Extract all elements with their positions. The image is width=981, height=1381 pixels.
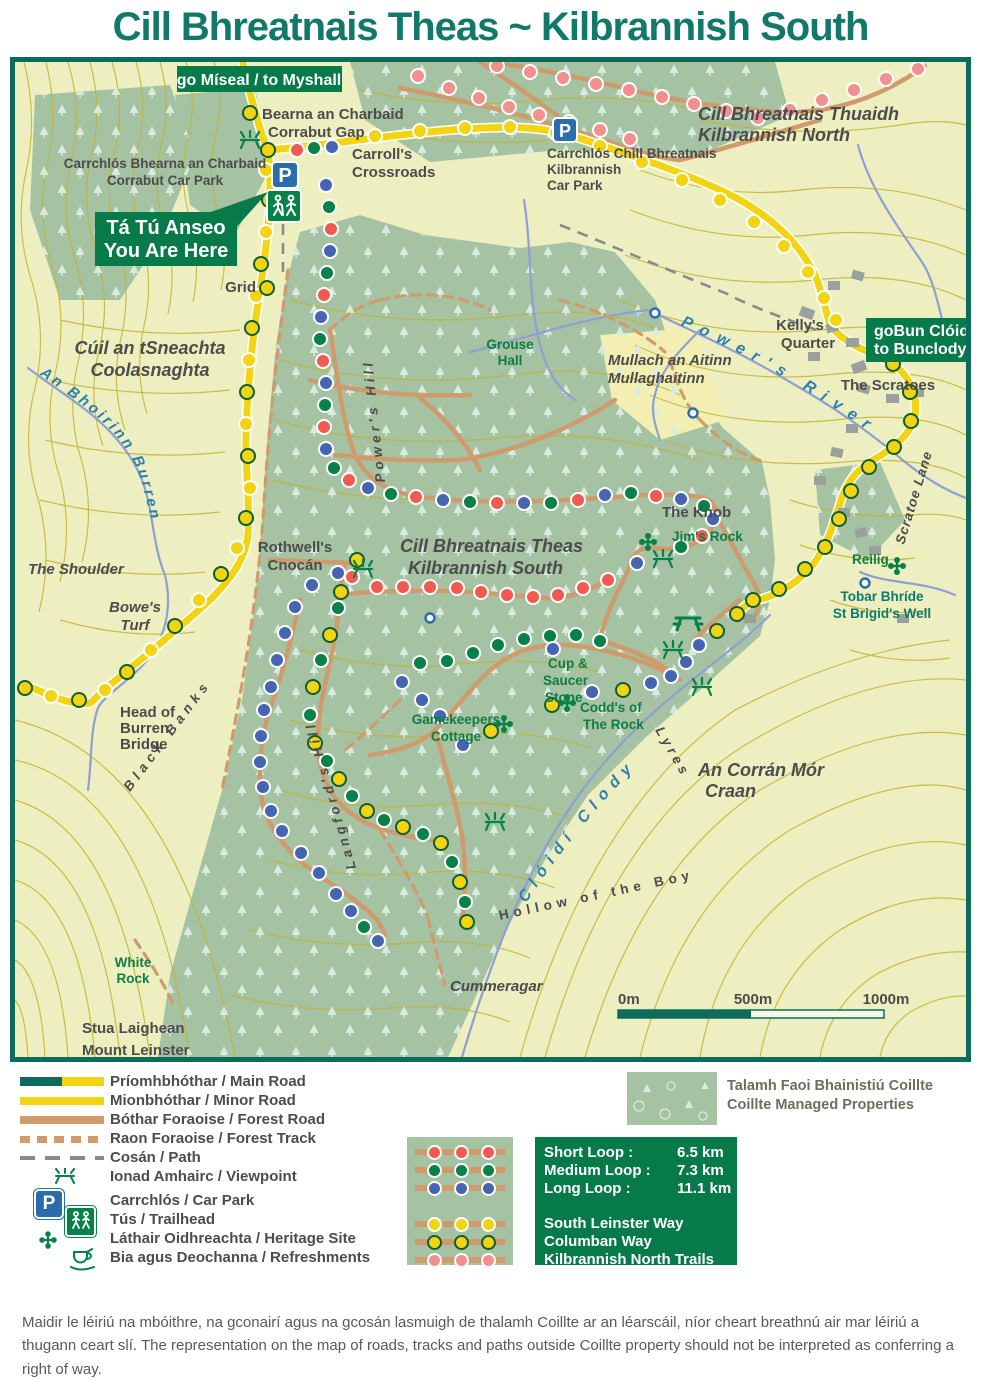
label-white-rock-1: White [115, 955, 152, 970]
south-leinster-way-dots [415, 1217, 505, 1231]
label-corran-mor-2: Craan [705, 781, 756, 801]
label-st-brigids-2: St Brigid's Well [833, 606, 931, 621]
label-kilbrannish-south-1: Cill Bhreatnais Theas [400, 536, 583, 556]
label-kilbrannish-south-2: Kilbrannish South [408, 558, 563, 578]
label-mullaghaitinn-2: Mullaghaitinn [608, 370, 705, 387]
label-codds-1: Codd's of [580, 700, 642, 715]
label-cummeragar: Cummeragar [450, 978, 544, 995]
legend-forest-road-label: Bóthar Foraoise / Forest Road [110, 1111, 325, 1128]
south-leinster-way-label: South Leinster Way [544, 1215, 737, 1233]
heritage-site-icon [36, 1228, 60, 1252]
label-coolasnaghta-2: Coolasnaghta [90, 360, 209, 380]
short-loop-name: Short Loop : [544, 1144, 677, 1162]
legend-heritage-label: Láthair Oidhreachta / Heritage Site [110, 1230, 356, 1247]
label-gamekeepers-1: Gamekeepers [412, 712, 501, 727]
short-loop-row: Short Loop : 6.5 km [544, 1144, 737, 1162]
label-the-knob: The Knob [662, 504, 731, 521]
forest-road-swatch [20, 1116, 104, 1124]
medium-loop-name: Medium Loop : [544, 1162, 677, 1180]
label-mount-leinster-2: Mount Leinster [82, 1042, 190, 1057]
medium-loop-dots [415, 1163, 505, 1177]
main-road-swatch [20, 1077, 104, 1086]
columban-way-label: Columban Way [544, 1233, 737, 1251]
label-grouse-hall-2: Hall [498, 353, 523, 368]
svg-text:go Míseal / to Myshall: go Míseal / to Myshall [177, 72, 341, 89]
label-coolasnaghta-1: Cúil an tSneachta [74, 338, 225, 358]
disclaimer-text: Maidir le léiriú na mbóithre, na gconair… [22, 1311, 959, 1381]
label-codds-2: The Rock [583, 717, 644, 732]
legend-trailhead-label: Tús / Trailhead [110, 1211, 215, 1228]
path-swatch [20, 1156, 104, 1160]
sign-to-bunclody: goBun Clóidí to Bunclody [866, 318, 966, 362]
scale-zero: 0m [618, 991, 640, 1008]
viewpoint-icon [50, 1168, 80, 1186]
short-loop-distance: 6.5 km [677, 1144, 724, 1162]
managed-properties-swatch [627, 1072, 717, 1125]
svg-text:P: P [278, 165, 291, 187]
legend-main-road-label: Príomhbhóthar / Main Road [110, 1073, 306, 1090]
svg-text:Tá Tú Anseo: Tá Tú Anseo [106, 217, 225, 239]
page-title: Cill Bhreatnais Theas ~ Kilbrannish Sout… [0, 0, 981, 55]
label-kilbrannish-carpark-1: Carrchlós Chill Bhreatnais [547, 146, 717, 161]
label-head-burren-1: Head of [120, 704, 176, 721]
label-bowes-turf-1: Bowe's [109, 599, 161, 616]
label-cup-saucer-1: Cup & [548, 656, 588, 671]
label-kilbrannish-carpark-3: Car Park [547, 178, 603, 193]
label-corrabut-carpark-1: Carrchlós Bhearna an Charbaid [64, 156, 267, 171]
long-loop-distance: 11.1 km [677, 1180, 731, 1198]
label-cup-saucer-3: Stone [545, 690, 583, 705]
trailhead-icon [65, 1206, 96, 1237]
scale-end: 1000m [863, 991, 910, 1008]
label-white-rock-2: Rock [116, 971, 150, 986]
long-loop-row: Long Loop : 11.1 km [544, 1180, 737, 1198]
label-kilbrannish-north-2: Kilbrannish North [698, 125, 850, 145]
label-corran-mor-1: An Corrán Mór [697, 760, 825, 780]
label-jims-rock: Jim's Rock [672, 529, 743, 544]
kilbrannish-north-dots [415, 1253, 505, 1267]
long-loop-dots [415, 1181, 505, 1195]
legend-refreshments-label: Bia agus Deochanna / Refreshments [110, 1249, 370, 1266]
managed-properties-label-1: Talamh Faoi Bhainistiú Coillte [727, 1078, 933, 1094]
trail-dot-legend [407, 1137, 513, 1265]
minor-road-swatch [20, 1097, 104, 1105]
kilbrannish-north-trails-label: Kilbrannish North Trails [544, 1251, 737, 1269]
short-loop-dots [415, 1145, 505, 1159]
label-st-brigids-1: Tobar Bhríde [840, 589, 923, 604]
label-bearna-1: Bearna an Charbaid [262, 106, 404, 123]
sign-to-myshall: go Míseal / to Myshall [177, 66, 342, 92]
label-grouse-hall-1: Grouse [486, 337, 534, 352]
label-reilig: Reilig [852, 552, 889, 567]
label-carrolls-1: Carroll's [352, 146, 412, 163]
legend-forest-track-label: Raon Foraoise / Forest Track [110, 1130, 316, 1147]
label-cup-saucer-2: Saucer [543, 673, 589, 688]
loop-distance-panel: Short Loop : 6.5 km Medium Loop : 7.3 km… [535, 1137, 737, 1265]
label-kilbrannish-carpark-2: Kilbrannish [547, 162, 621, 177]
label-gamekeepers-2: Cottage [431, 729, 482, 744]
trail-map: P P Bearna an Charbaid Corrabut Gap Carr… [10, 57, 971, 1062]
label-mount-leinster-1: Stua Laighean [82, 1020, 185, 1037]
legend-viewpoint-label: Ionad Amhairc / Viewpoint [110, 1168, 297, 1185]
refreshments-icon [68, 1247, 98, 1273]
label-corrabut-carpark-2: Corrabut Car Park [107, 173, 224, 188]
label-rothwells-1: Rothwell's [258, 539, 332, 556]
label-mullaghaitinn-1: Mullach an Aitinn [608, 352, 732, 369]
label-carrolls-2: Crossroads [352, 164, 435, 181]
legend-car-park-label: Carrchlós / Car Park [110, 1192, 254, 1209]
label-kellys-2: Quarter [781, 335, 835, 352]
label-kellys-1: Kelly's [776, 317, 824, 334]
label-rothwells-2: Cnocán [267, 557, 322, 574]
svg-text:goBun Clóidí: goBun Clóidí [874, 323, 966, 340]
svg-text:P: P [559, 121, 571, 141]
legend-minor-road-label: Mionbhóthar / Minor Road [110, 1092, 296, 1109]
medium-loop-distance: 7.3 km [677, 1162, 724, 1180]
label-kilbrannish-north-1: Cill Bhreatnais Thuaidh [698, 104, 899, 124]
columban-way-dots [415, 1235, 505, 1249]
svg-text:You Are Here: You Are Here [104, 240, 228, 262]
label-the-shoulder: The Shoulder [28, 561, 125, 578]
managed-properties-label-2: Coillte Managed Properties [727, 1097, 914, 1113]
label-scratoes: The Scratoes [841, 377, 935, 394]
forest-track-swatch [20, 1136, 104, 1143]
label-bowes-turf-2: Turf [121, 617, 152, 634]
legend-path-label: Cosán / Path [110, 1149, 201, 1166]
medium-loop-row: Medium Loop : 7.3 km [544, 1162, 737, 1180]
scale-mid: 500m [734, 991, 772, 1008]
svg-text:to Bunclody: to Bunclody [874, 341, 966, 358]
long-loop-name: Long Loop : [544, 1180, 677, 1198]
car-park-icon: P [34, 1189, 64, 1219]
label-grid: Grid [225, 279, 256, 296]
label-bearna-2: Corrabut Gap [268, 124, 365, 141]
trailhead-icon [267, 190, 301, 222]
